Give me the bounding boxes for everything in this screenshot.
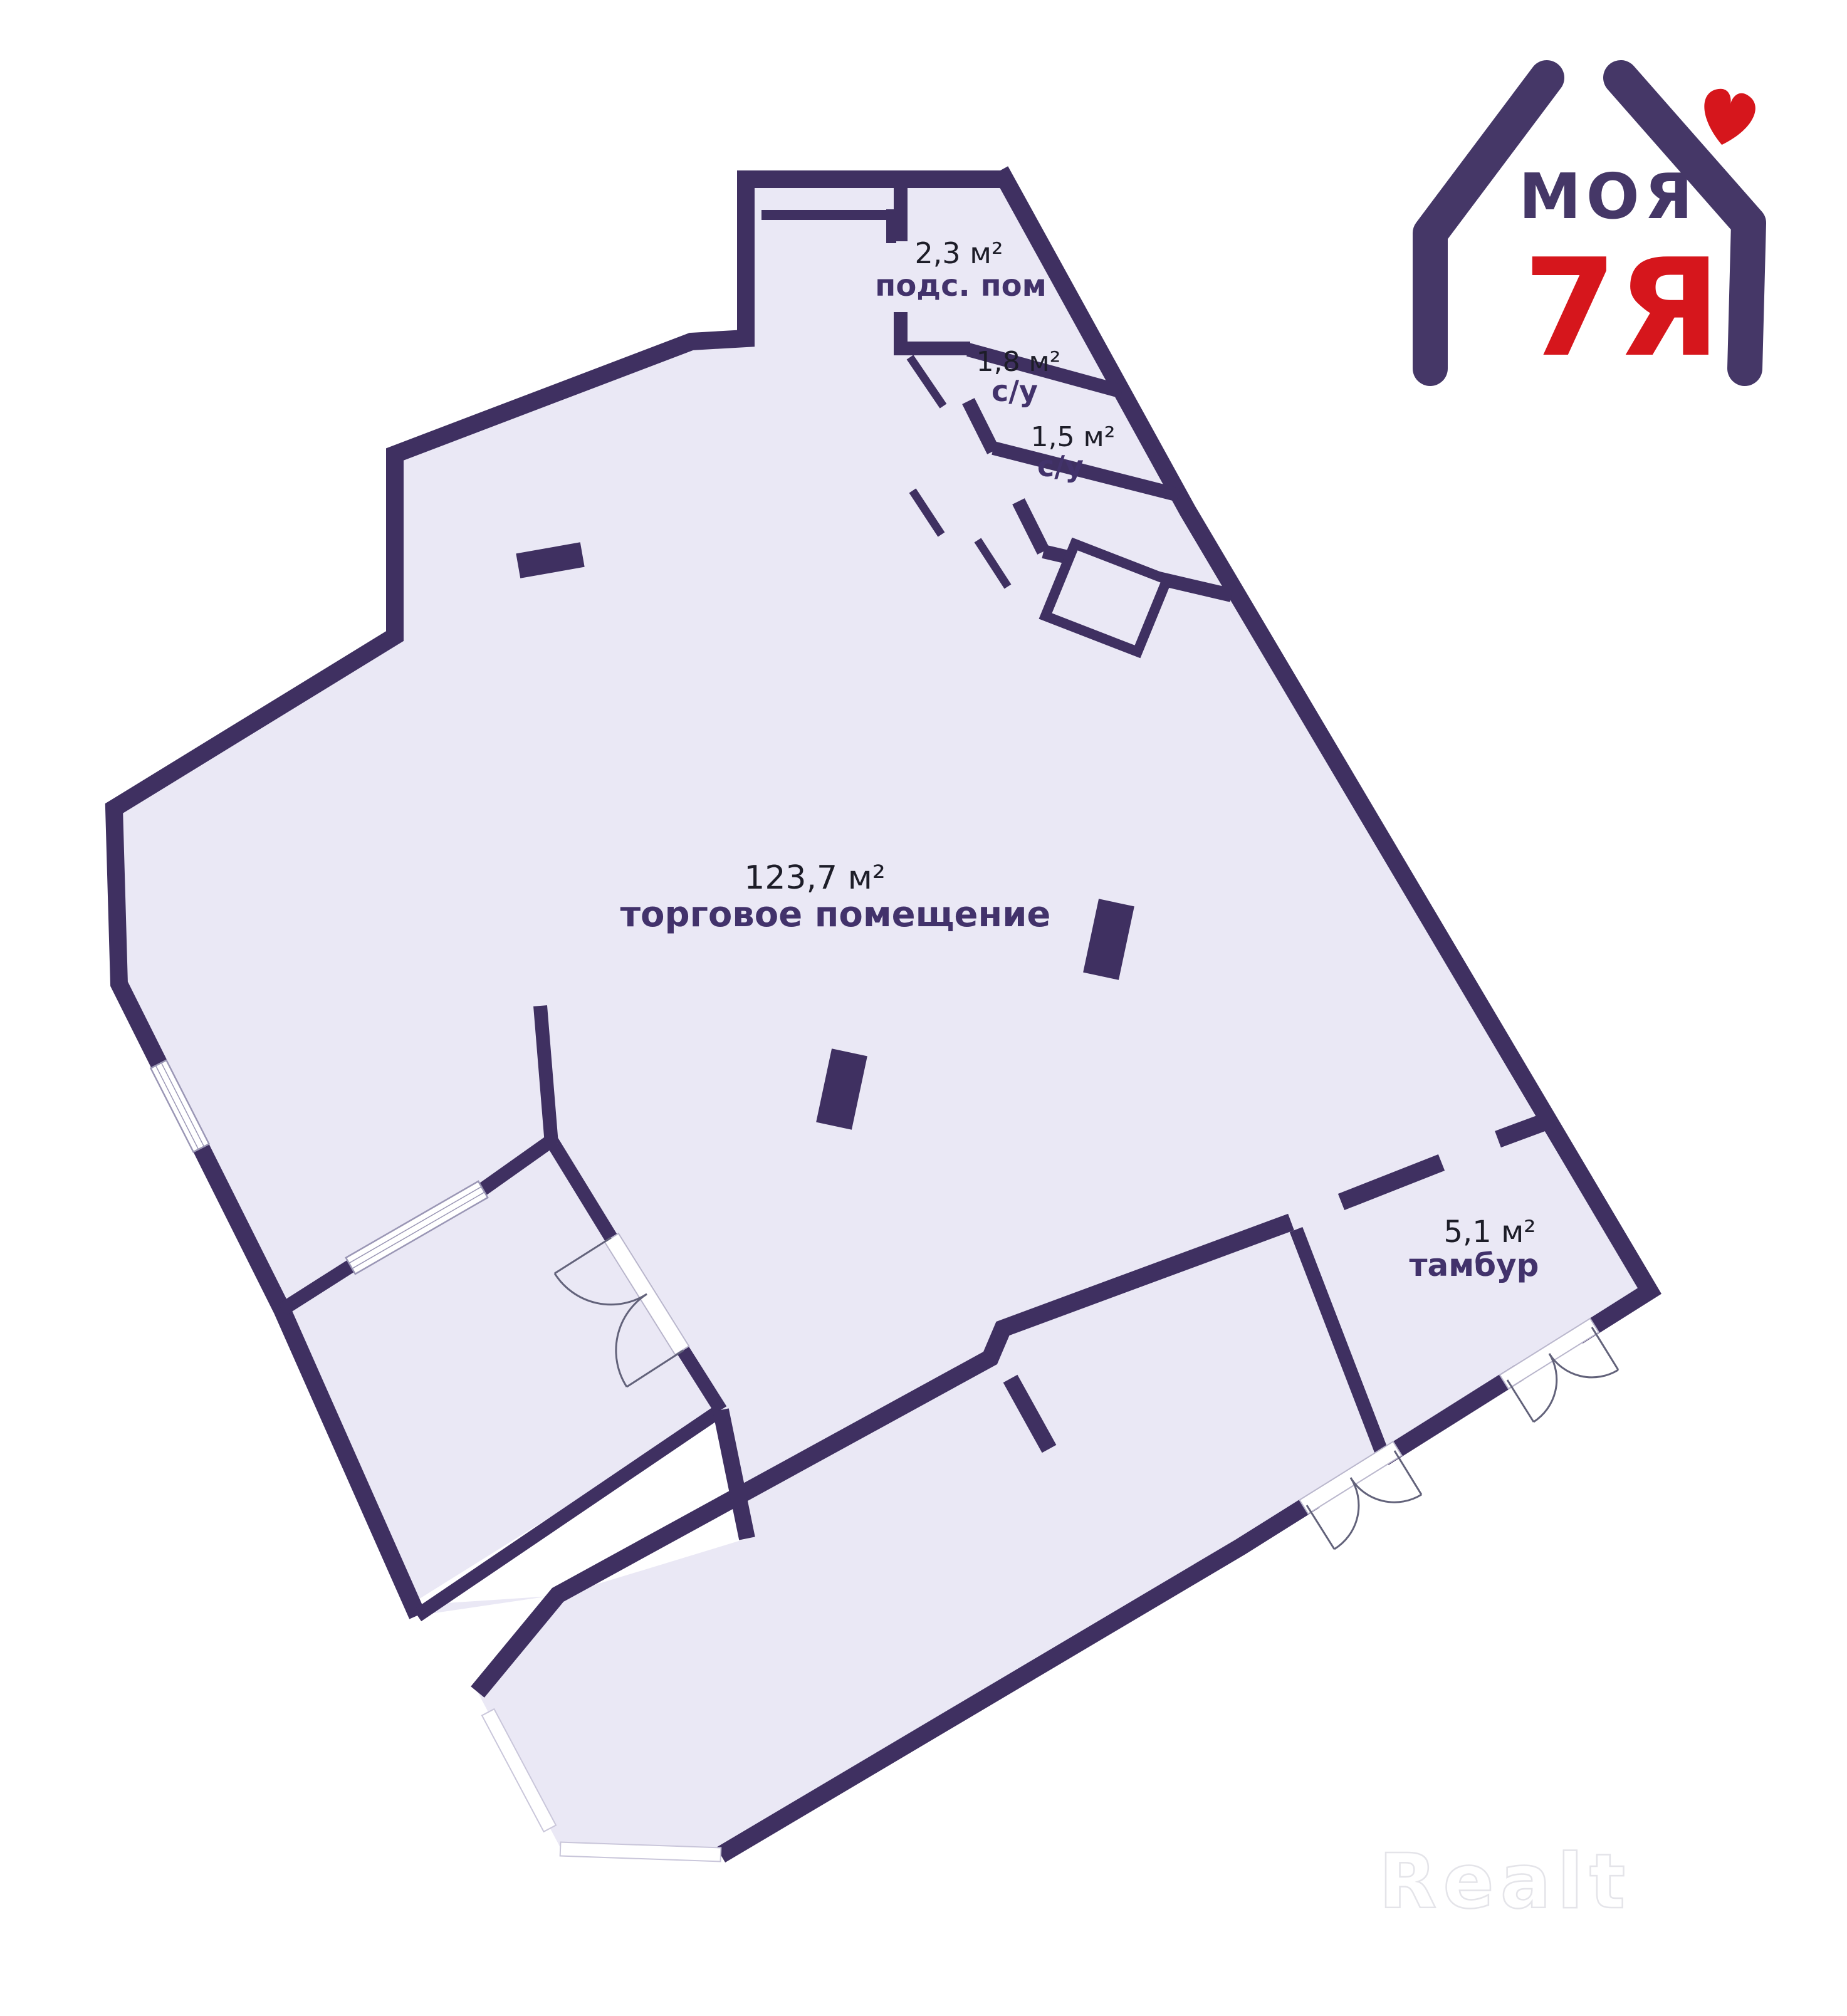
- room-name: с/у: [1037, 449, 1084, 483]
- room-name: с/у: [992, 374, 1038, 408]
- floorplan-page: 2,3 м² подс. пом 1,8 м² с/у 1,5 м² с/у 1…: [0, 0, 1847, 2016]
- room-name: тамбур: [1410, 1247, 1539, 1283]
- room-area: 1,8 м²: [976, 346, 1061, 378]
- logo-subtitle: 7Я: [1523, 229, 1720, 387]
- room-area: 123,7 м²: [744, 859, 885, 897]
- realt-watermark: Realt: [1379, 1839, 1631, 1926]
- room-name: подс. пом: [875, 268, 1047, 303]
- floor-fill-main: [114, 170, 1650, 1855]
- floorplan-canvas: 2,3 м² подс. пом 1,8 м² с/у 1,5 м² с/у 1…: [0, 0, 1847, 2016]
- room-area: 5,1 м²: [1443, 1214, 1536, 1250]
- room-name: торговое помещение: [620, 894, 1051, 935]
- agency-logo: МОЯ 7Я: [1430, 78, 1758, 387]
- room-area: 2,3 м²: [915, 236, 1003, 270]
- floorplan-drawing: 2,3 м² подс. пом 1,8 м² с/у 1,5 м² с/у 1…: [114, 170, 1650, 1861]
- logo-title: МОЯ: [1519, 160, 1698, 233]
- heart-icon: [1697, 86, 1758, 150]
- room-area: 1,5 м²: [1031, 421, 1116, 453]
